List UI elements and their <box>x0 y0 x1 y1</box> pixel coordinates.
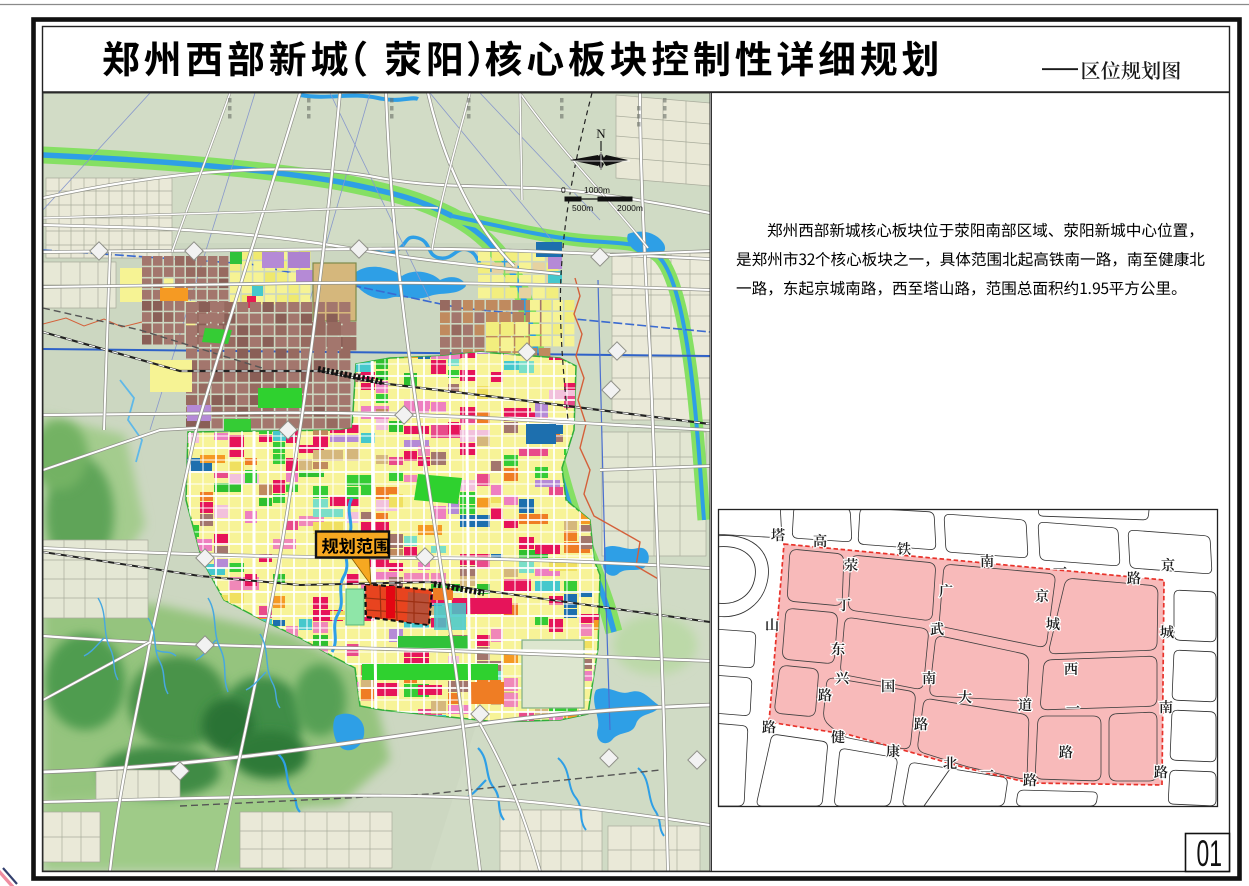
svg-text:N: N <box>596 126 606 141</box>
svg-text:2000m: 2000m <box>617 203 643 213</box>
svg-text:1000m: 1000m <box>584 185 610 195</box>
svg-text:500m: 500m <box>572 203 593 213</box>
svg-text:0: 0 <box>561 185 566 195</box>
svg-text:01: 01 <box>1197 832 1223 874</box>
